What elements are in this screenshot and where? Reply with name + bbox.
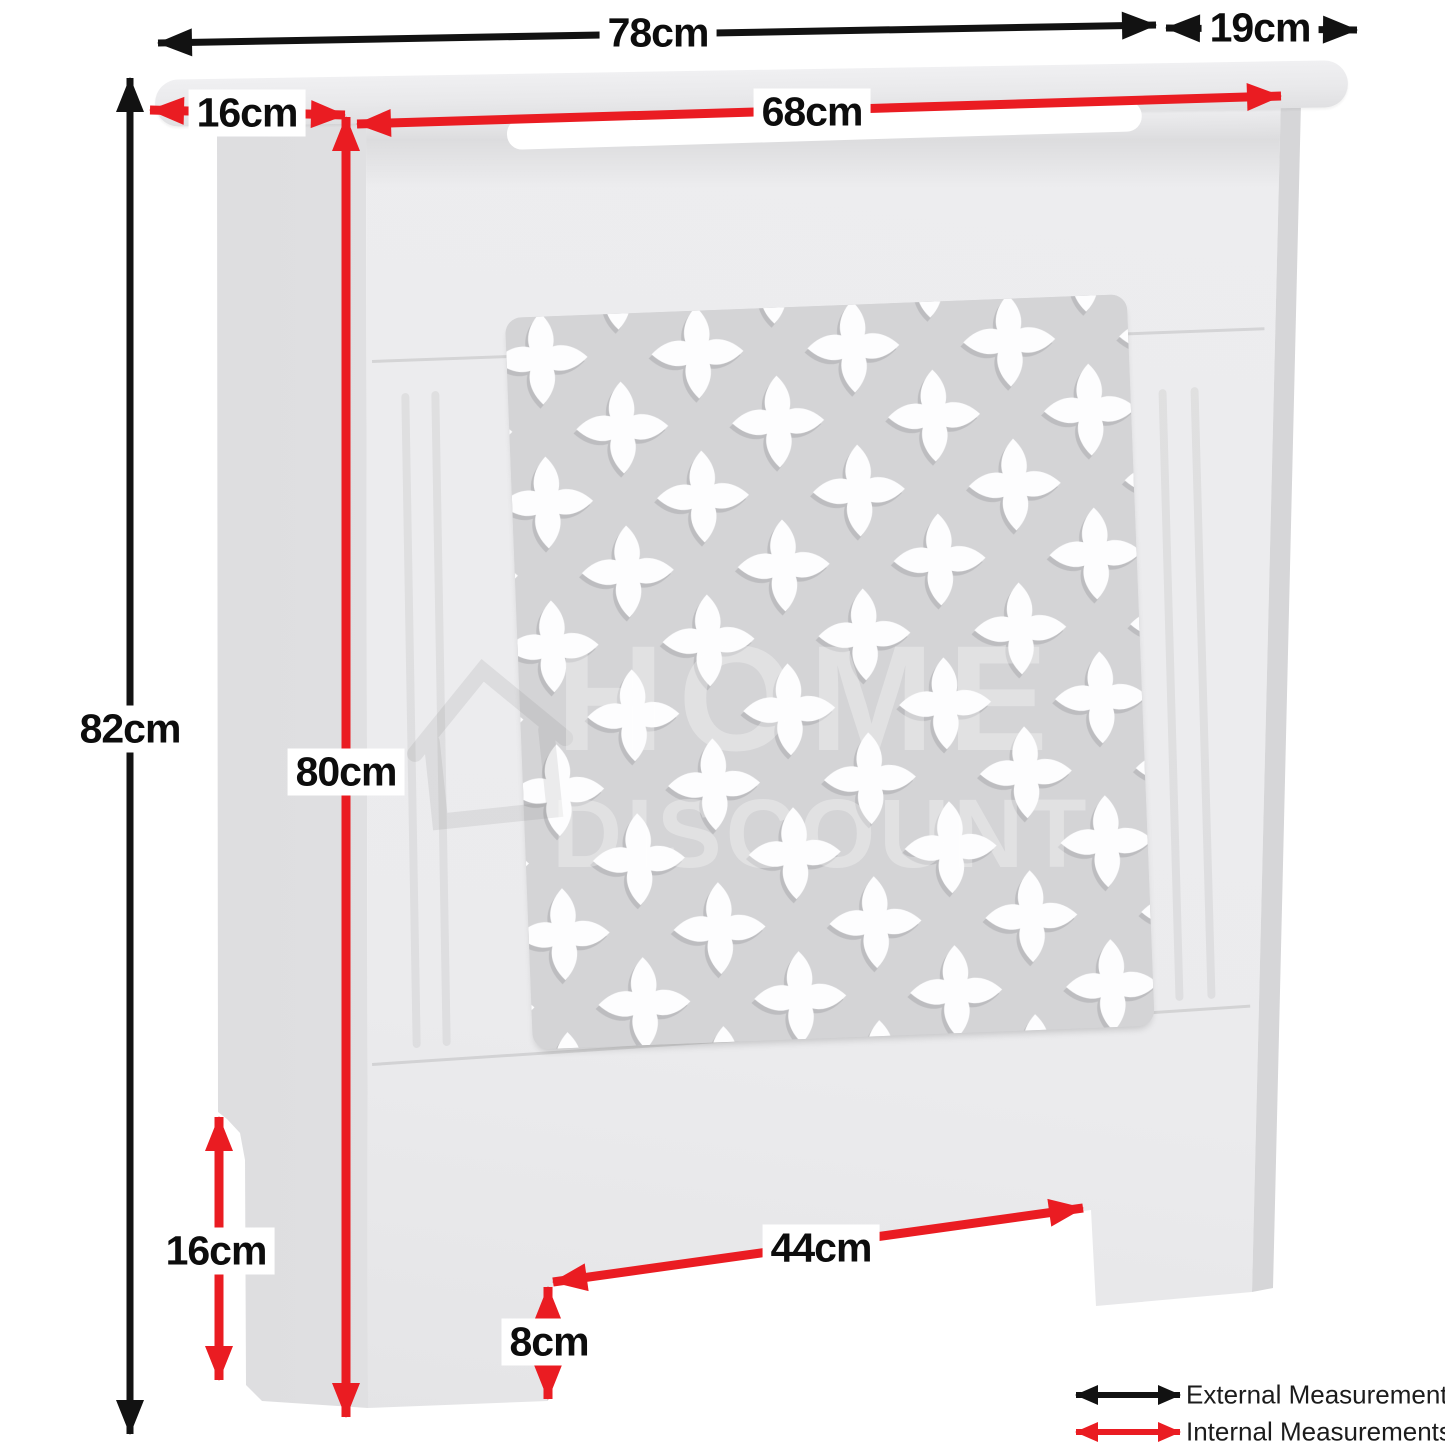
label-external-width: 78cm — [600, 10, 717, 57]
legend-external-label: External Measurements — [1186, 1380, 1445, 1411]
dimension-diagram: HOME DISCOUNT 78c — [0, 0, 1445, 1445]
label-side-leg-height: 16cm — [158, 1228, 275, 1275]
label-bottom-opening-height: 8cm — [501, 1319, 596, 1366]
label-internal-width: 68cm — [754, 89, 871, 136]
legend-internal-label: Internal Measurements — [1186, 1417, 1445, 1445]
label-bottom-opening-width: 44cm — [763, 1225, 880, 1272]
label-internal-height: 80cm — [288, 749, 405, 796]
label-external-height: 82cm — [72, 706, 189, 753]
label-internal-top-depth: 16cm — [189, 90, 306, 137]
label-external-depth: 19cm — [1202, 5, 1319, 52]
